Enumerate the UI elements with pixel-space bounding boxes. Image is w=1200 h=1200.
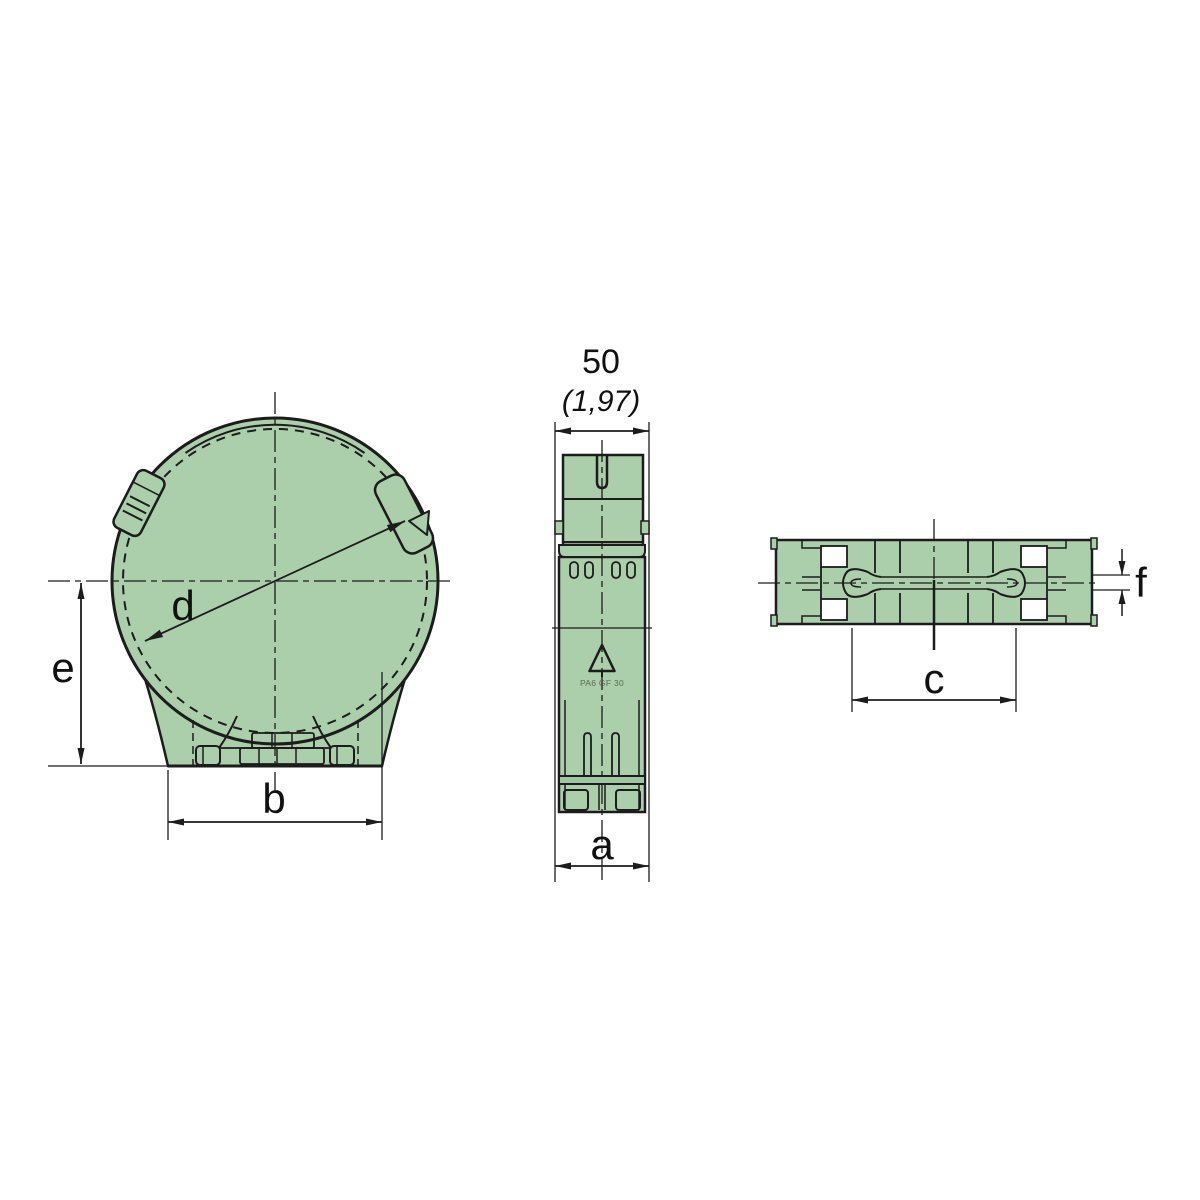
corner-tick <box>771 615 777 626</box>
dimension-label-b: b <box>262 775 285 822</box>
dimension-label-e: e <box>51 644 74 691</box>
dimension-label-a: a <box>590 821 614 868</box>
notch-opening <box>821 546 847 567</box>
notch-opening <box>821 599 847 620</box>
corner-tick <box>771 538 777 549</box>
side-latch-tick-left <box>555 521 563 534</box>
dimension-label-50: 50 <box>582 343 620 381</box>
notch-opening <box>1021 599 1047 620</box>
dimension-label-inches: (1,97) <box>562 385 640 418</box>
dimension-label-c: c <box>924 655 945 702</box>
corner-tick <box>1091 615 1097 626</box>
side-latch-tick-right <box>641 521 649 534</box>
technical-drawing-canvas: d e b 50 (1,97) <box>0 0 1200 1200</box>
base-strip-shade <box>560 777 644 784</box>
dimension-label-d: d <box>171 582 194 629</box>
material-text: PA6 GF 30 <box>580 678 624 688</box>
corner-tick <box>1091 538 1097 549</box>
technical-drawing-page: d e b 50 (1,97) <box>0 0 1200 1200</box>
dimension-label-f: f <box>1135 559 1147 606</box>
notch-opening <box>1021 546 1047 567</box>
